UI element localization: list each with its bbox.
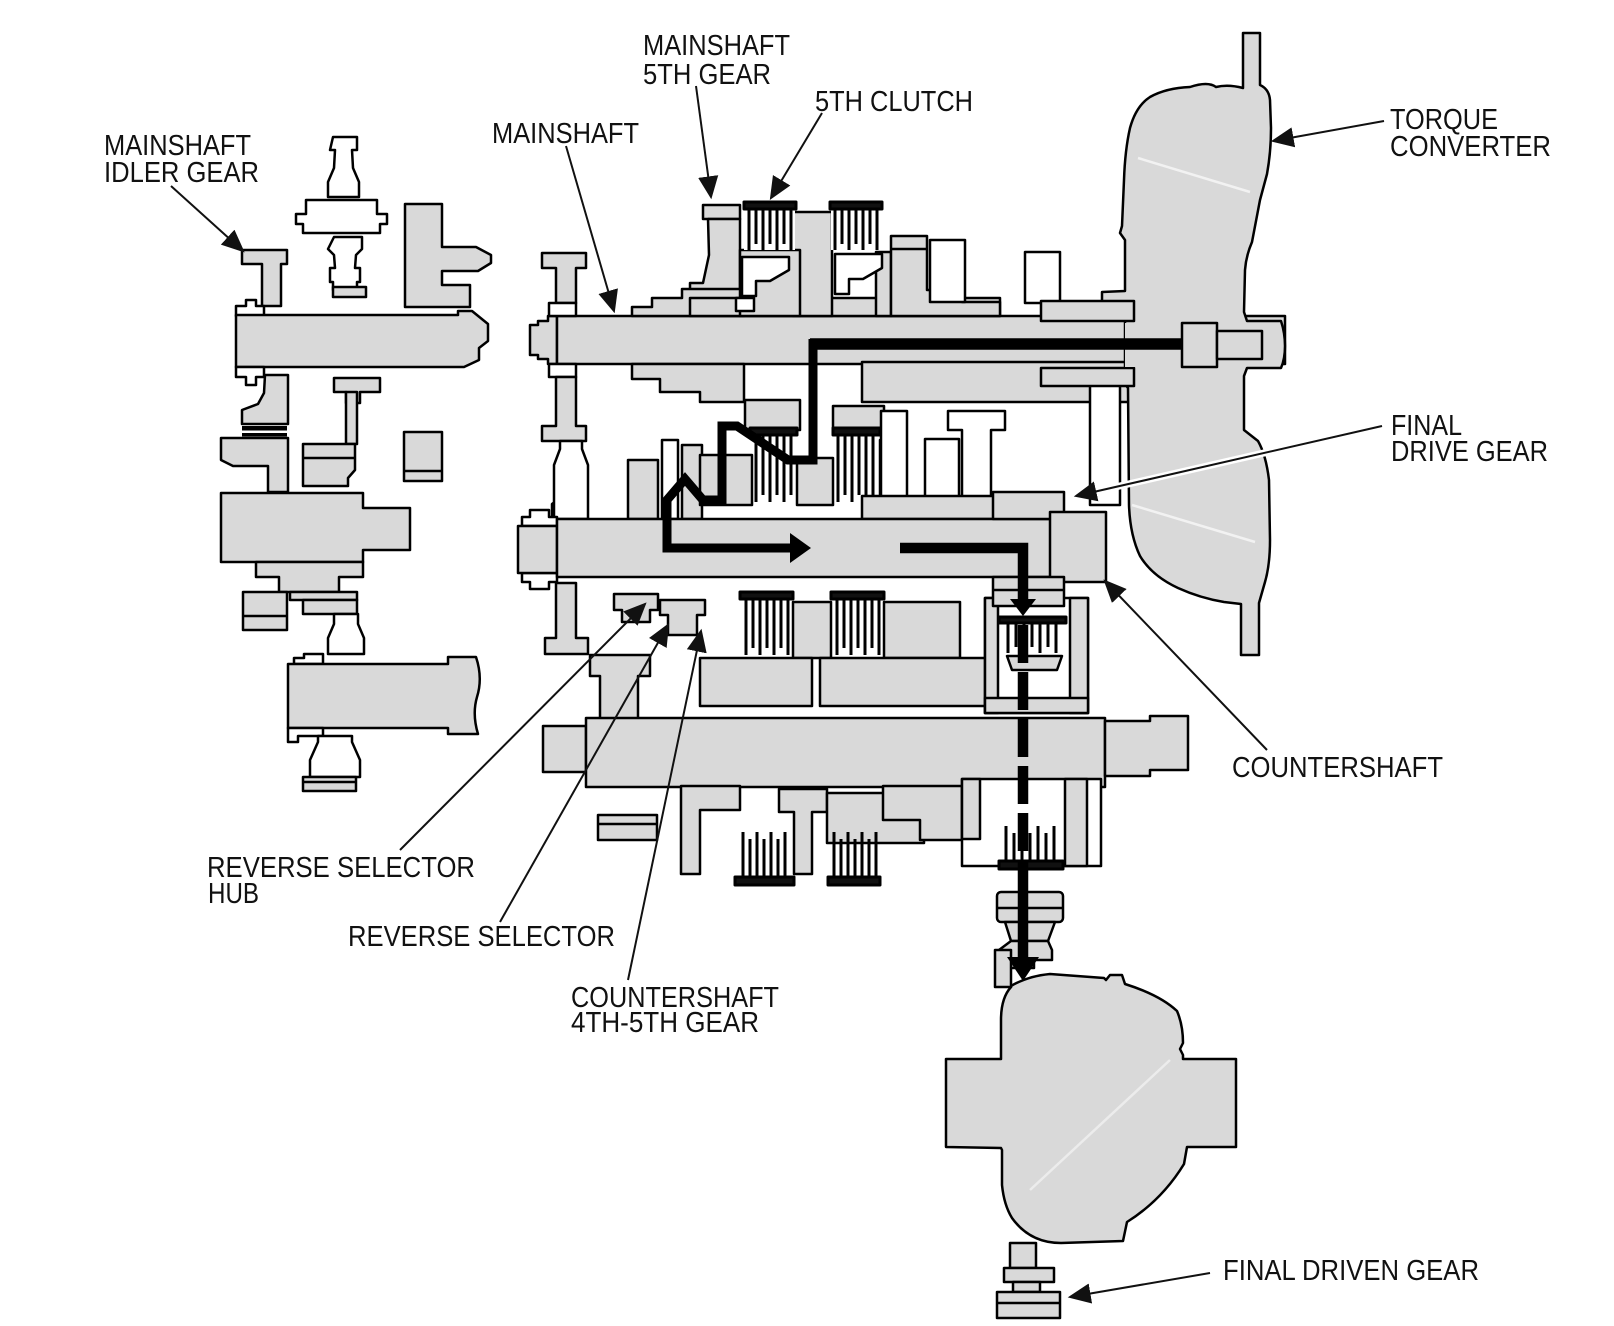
svg-text:FINAL DRIVEN GEAR: FINAL DRIVEN GEAR: [1223, 1255, 1479, 1287]
svg-text:HUB: HUB: [208, 878, 259, 910]
svg-text:MAINSHAFT: MAINSHAFT: [492, 118, 639, 150]
svg-text:5TH GEAR: 5TH GEAR: [643, 59, 771, 91]
svg-text:DRIVE GEAR: DRIVE GEAR: [1391, 436, 1548, 468]
svg-text:COUNTERSHAFT: COUNTERSHAFT: [1232, 752, 1443, 784]
svg-text:5TH CLUTCH: 5TH CLUTCH: [815, 86, 973, 118]
svg-text:CONVERTER: CONVERTER: [1390, 131, 1551, 163]
svg-text:REVERSE SELECTOR: REVERSE SELECTOR: [348, 921, 615, 953]
svg-text:IDLER GEAR: IDLER GEAR: [104, 157, 259, 189]
svg-text:4TH-5TH GEAR: 4TH-5TH GEAR: [571, 1007, 759, 1039]
svg-text:MAINSHAFT: MAINSHAFT: [643, 30, 790, 62]
